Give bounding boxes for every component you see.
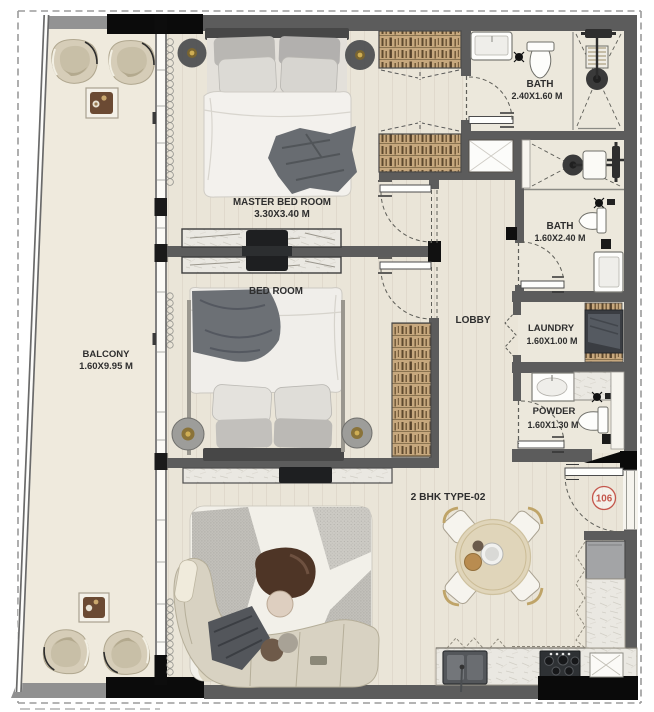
svg-text:1.60X9.95 M: 1.60X9.95 M: [79, 361, 133, 372]
svg-text:BED ROOM: BED ROOM: [249, 286, 303, 297]
svg-text:MASTER BED ROOM: MASTER BED ROOM: [233, 197, 331, 208]
svg-text:POWDER: POWDER: [533, 406, 576, 417]
svg-text:1.60X2.40 M: 1.60X2.40 M: [534, 233, 585, 243]
svg-text:1.60X1.30 M: 1.60X1.30 M: [527, 420, 578, 430]
svg-text:BATH: BATH: [526, 79, 553, 90]
svg-text:2.40X1.60 M: 2.40X1.60 M: [511, 91, 562, 101]
svg-text:2 BHK TYPE-02: 2 BHK TYPE-02: [411, 492, 486, 503]
svg-text:LOBBY: LOBBY: [456, 315, 491, 326]
svg-text:3.30X3.40 M: 3.30X3.40 M: [254, 209, 310, 220]
svg-text:BATH: BATH: [546, 221, 573, 232]
svg-text:1.60X1.00 M: 1.60X1.00 M: [526, 336, 577, 346]
svg-text:106: 106: [596, 494, 613, 505]
svg-text:LAUNDRY: LAUNDRY: [528, 323, 575, 334]
svg-text:BALCONY: BALCONY: [83, 349, 131, 360]
